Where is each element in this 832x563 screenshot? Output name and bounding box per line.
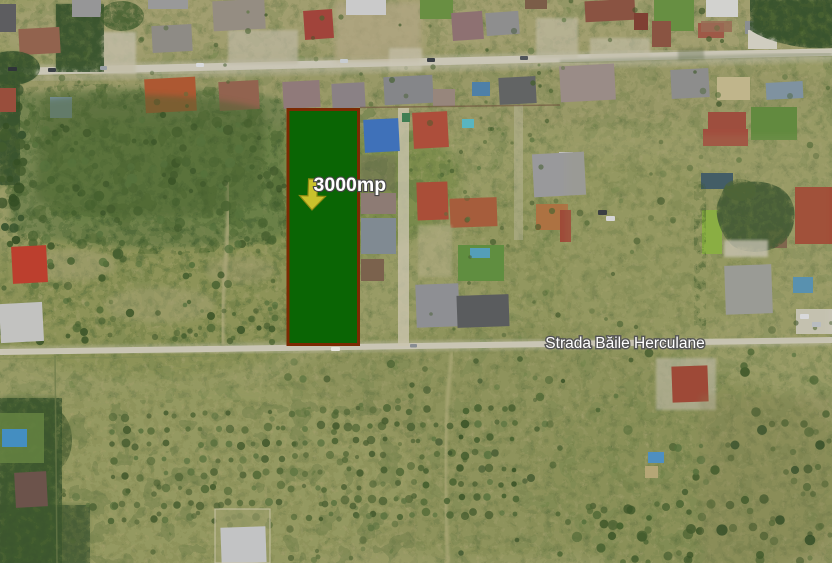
svg-text:Strada Băile Herculane: Strada Băile Herculane [545,335,704,352]
svg-text:3000mp: 3000mp [314,174,387,196]
